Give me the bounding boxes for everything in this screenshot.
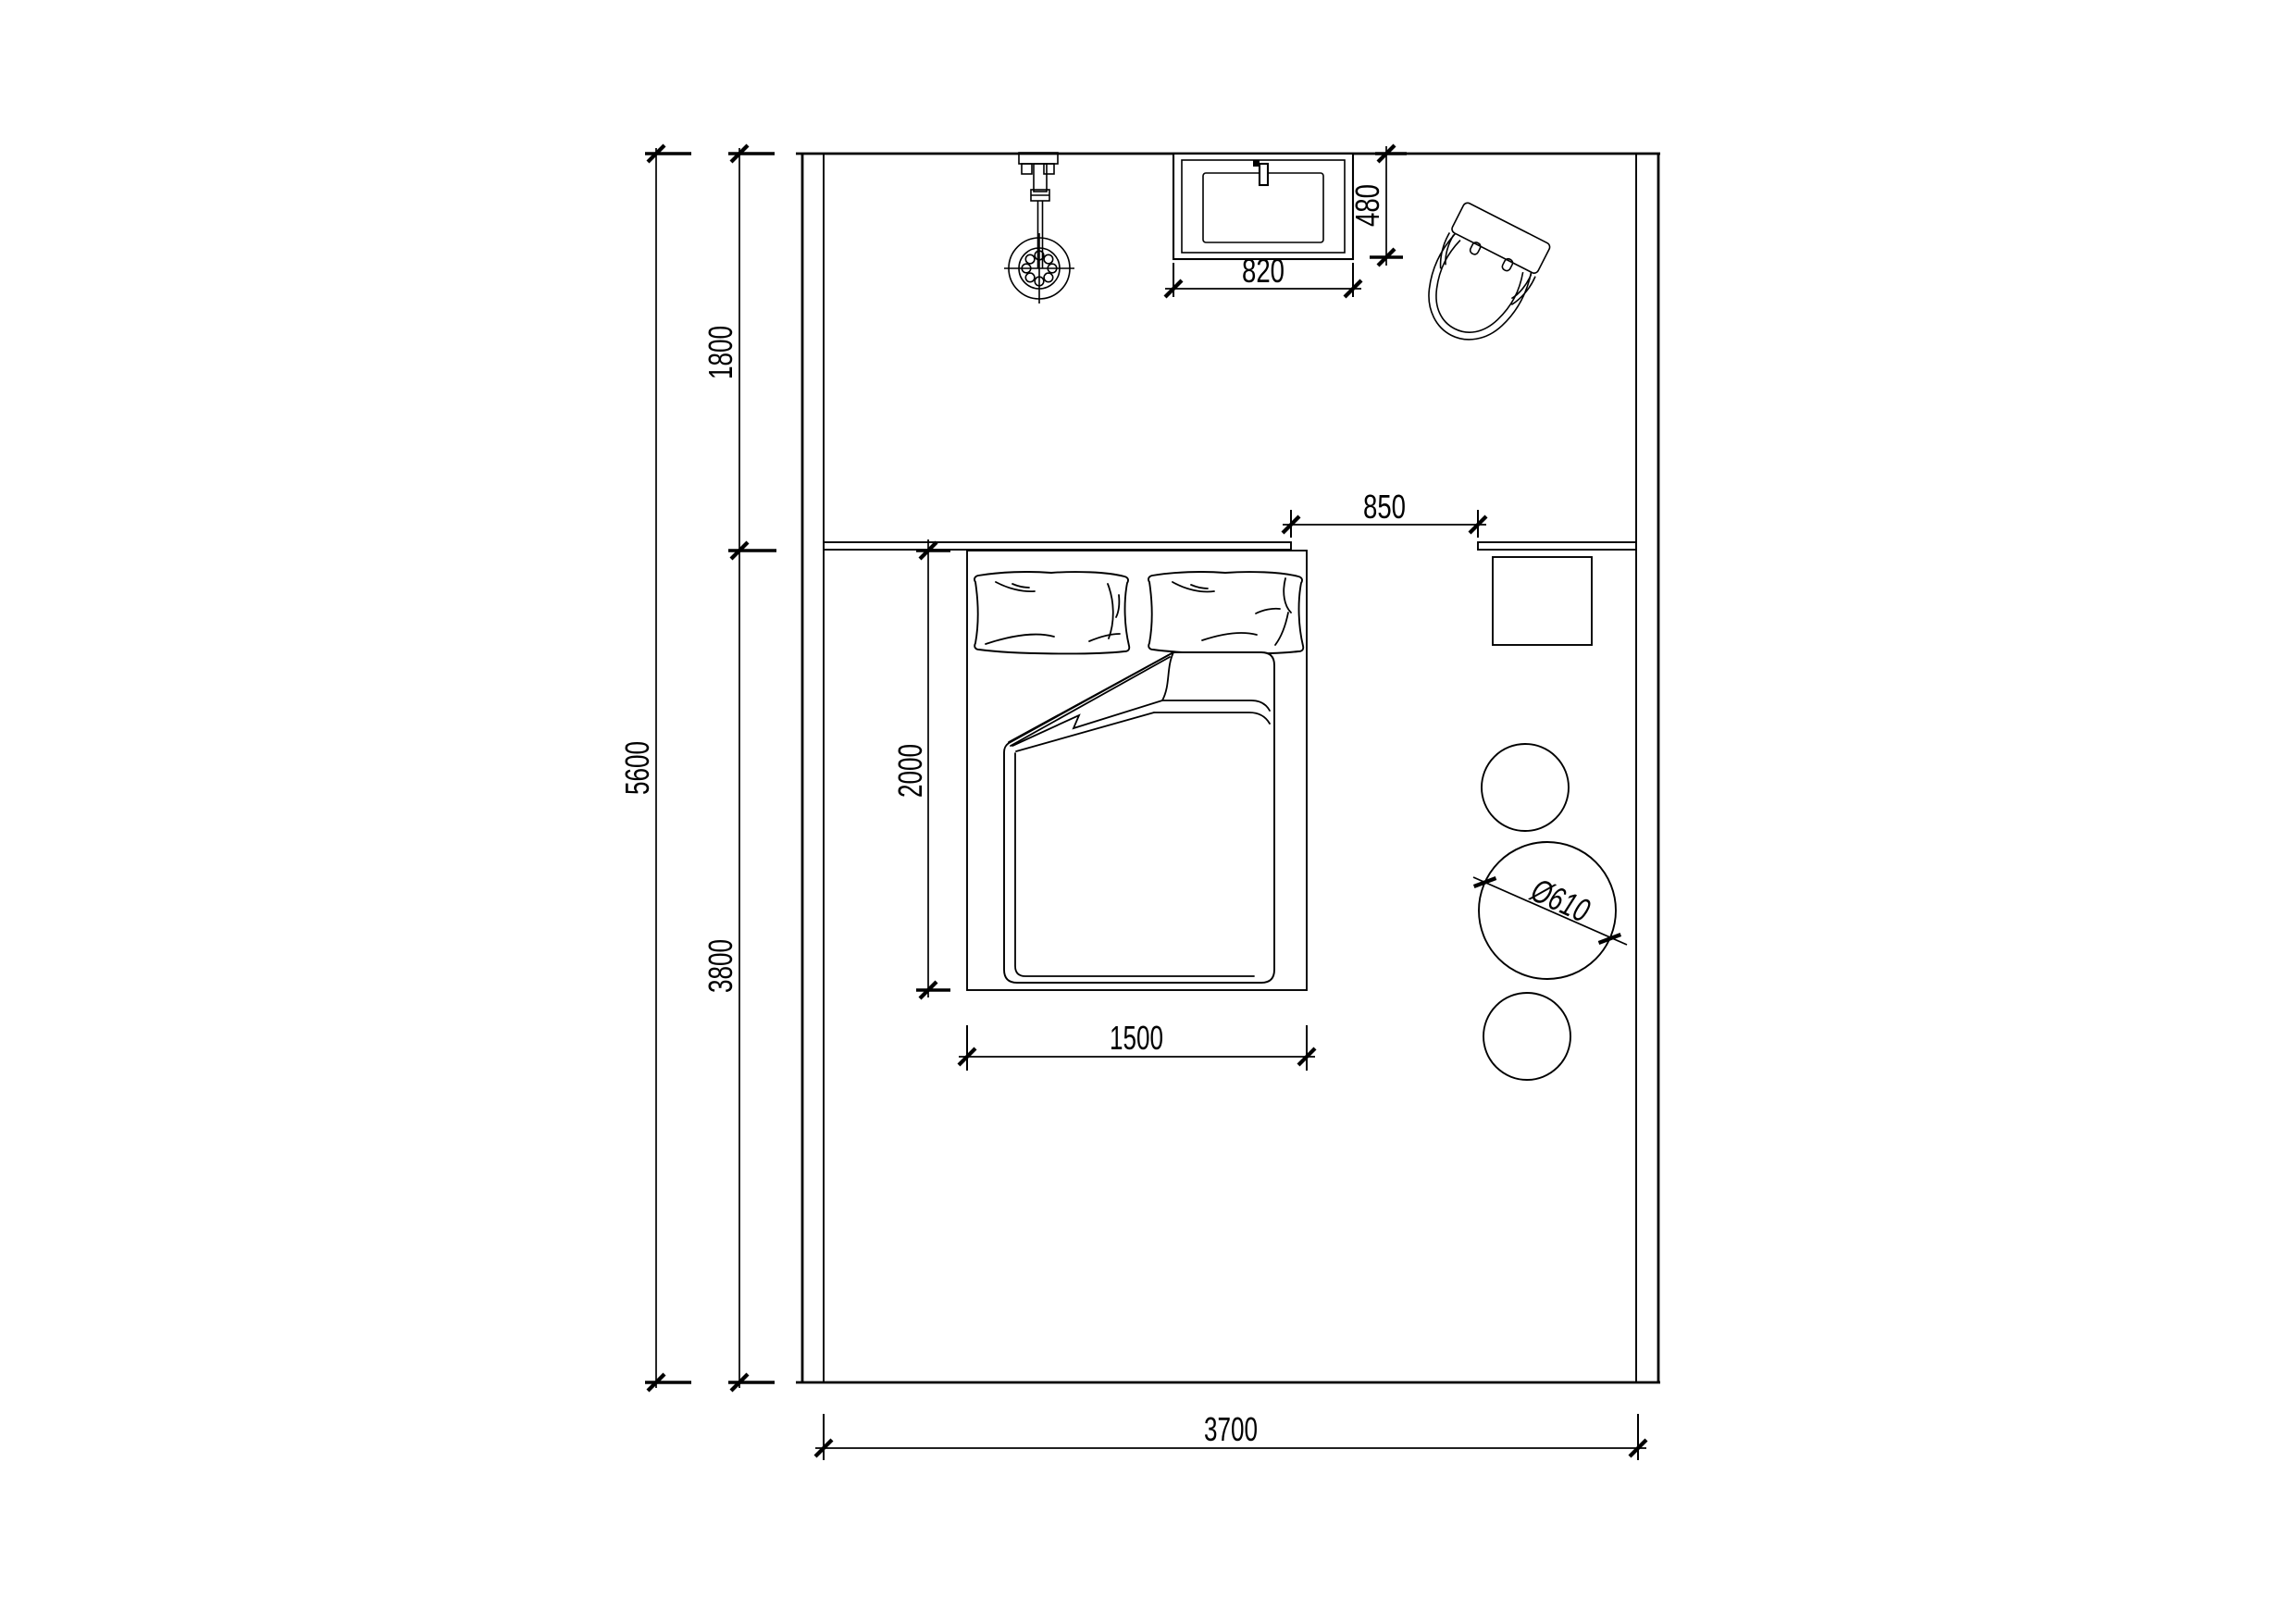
folded-blanket (1004, 652, 1274, 983)
blanket-outline (1004, 652, 1274, 983)
dim-label-820: 820 (1242, 252, 1285, 290)
headboard-ledge (824, 542, 1636, 550)
ledge-right (1478, 542, 1636, 550)
dim-label-3800: 3800 (701, 939, 739, 993)
dim-label-3700: 3700 (1204, 1410, 1258, 1448)
side-table (1493, 557, 1592, 645)
pillow-right (1148, 572, 1303, 653)
dim-3700: 3700 (815, 1410, 1646, 1460)
wash-basin (1173, 154, 1353, 259)
shower-head (1004, 153, 1074, 304)
dim-label-480: 480 (1348, 184, 1386, 227)
ledge-left (824, 542, 1291, 550)
dim-2000: 2000 (891, 539, 950, 998)
toilet-tank (1450, 202, 1551, 275)
shower-bracket-foot-left (1022, 164, 1032, 174)
stool-bottom (1483, 993, 1570, 1080)
dim-label-1500: 1500 (1110, 1019, 1163, 1057)
double-bed (967, 551, 1307, 990)
dim-label-2000: 2000 (891, 744, 929, 798)
floor-plan-canvas: 5600 1800 3800 2000 480 820 (0, 0, 2296, 1623)
dim-label-610: Ø610 (1525, 871, 1595, 930)
dim-850: 850 (1283, 488, 1486, 538)
dim-label-5600: 5600 (618, 741, 656, 795)
dim-label-1800: 1800 (701, 326, 739, 379)
dim-label-850: 850 (1363, 488, 1406, 526)
dim-1500: 1500 (959, 1019, 1315, 1071)
dim-610: Ø610 (1473, 871, 1627, 950)
shower-arm (1034, 164, 1047, 192)
stool-top (1482, 744, 1569, 831)
floor-plan-page: 5600 1800 3800 2000 480 820 (0, 0, 2296, 1623)
shower-bracket-foot-right (1044, 164, 1054, 174)
basin-faucet-handle (1253, 160, 1260, 167)
dim-5600: 5600 (618, 145, 691, 1391)
basin-faucet (1260, 164, 1268, 185)
pillow-left (974, 572, 1129, 653)
dim-1800-3800: 1800 3800 (701, 145, 776, 1391)
dim-480: 480 (1348, 145, 1407, 266)
toilet (1409, 202, 1552, 358)
